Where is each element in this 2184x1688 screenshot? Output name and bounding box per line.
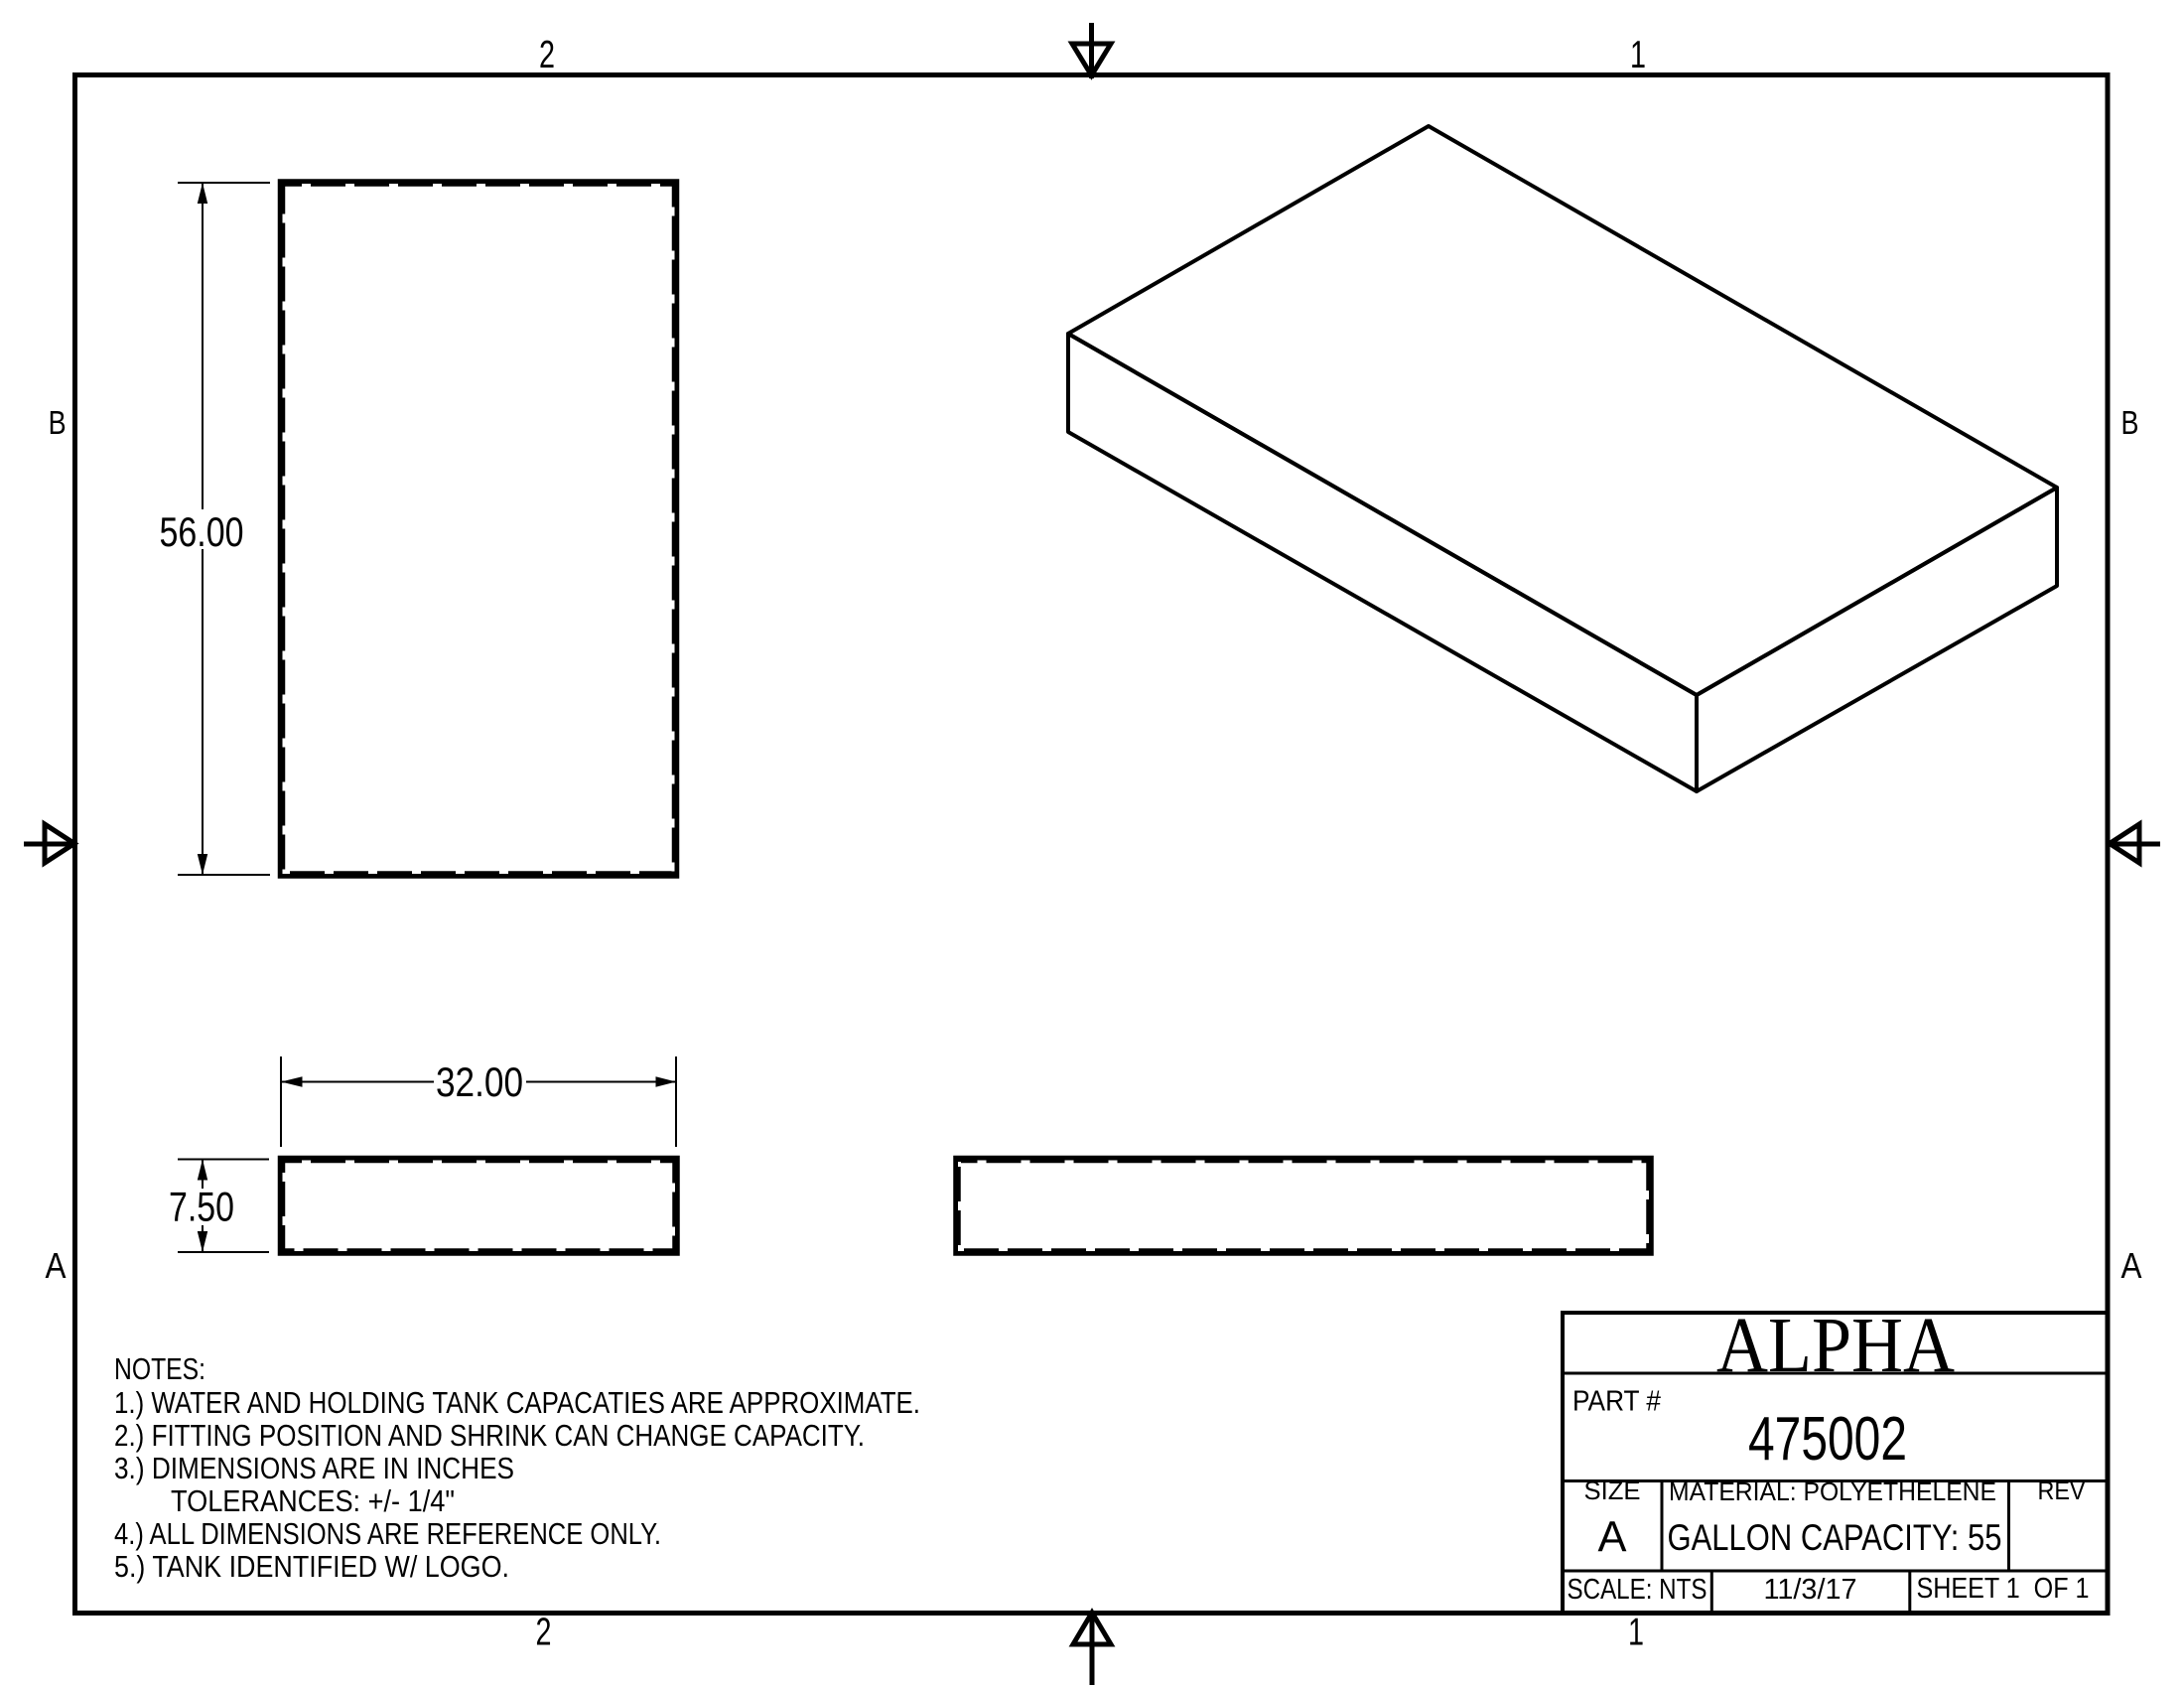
- svg-text:4.) ALL DIMENSIONS ARE REFEREN: 4.) ALL DIMENSIONS ARE REFERENCE ONLY.: [114, 1516, 661, 1551]
- svg-text:A: A: [2121, 1245, 2142, 1286]
- svg-text:3.) DIMENSIONS ARE IN INCHES: 3.) DIMENSIONS ARE IN INCHES: [114, 1451, 514, 1485]
- svg-text:MATERIAL: POLYETHELENE: MATERIAL: POLYETHELENE: [1669, 1477, 1996, 1506]
- svg-text:1.) WATER AND HOLDING TANK CAP: 1.) WATER AND HOLDING TANK CAPACATIES AR…: [114, 1385, 920, 1420]
- svg-text:2: 2: [536, 1612, 552, 1654]
- svg-text:475002: 475002: [1748, 1405, 1907, 1474]
- svg-text:NOTES:: NOTES:: [114, 1351, 205, 1386]
- svg-text:32.00: 32.00: [436, 1058, 523, 1105]
- svg-text:SIZE: SIZE: [1584, 1476, 1641, 1505]
- svg-text:2: 2: [539, 34, 555, 76]
- svg-text:56.00: 56.00: [160, 508, 244, 555]
- svg-text:2.) FITTING POSITION AND SHRIN: 2.) FITTING POSITION AND SHRINK CAN CHAN…: [114, 1418, 865, 1453]
- svg-text:1: 1: [1628, 1612, 1644, 1654]
- svg-text:A: A: [46, 1245, 67, 1286]
- svg-text:GALLON CAPACITY: 55: GALLON CAPACITY: 55: [1668, 1517, 2002, 1558]
- svg-text:ALPHA: ALPHA: [1716, 1303, 1955, 1389]
- svg-text:7.50: 7.50: [169, 1184, 234, 1230]
- svg-text:5.) TANK IDENTIFIED W/ LOGO.: 5.) TANK IDENTIFIED W/ LOGO.: [114, 1549, 509, 1584]
- svg-text:B: B: [2121, 404, 2139, 441]
- svg-text:REV: REV: [2038, 1476, 2087, 1505]
- svg-text:TOLERANCES: +/- 1/4": TOLERANCES: +/- 1/4": [171, 1483, 455, 1518]
- svg-text:11/3/17: 11/3/17: [1764, 1574, 1857, 1606]
- svg-text:PART #: PART #: [1572, 1386, 1661, 1418]
- svg-text:SCALE: NTS: SCALE: NTS: [1568, 1574, 1707, 1606]
- svg-text:1: 1: [1630, 34, 1646, 76]
- svg-text:A: A: [1598, 1513, 1628, 1562]
- svg-text:SHEET 1 OF 1: SHEET 1 OF 1: [1917, 1573, 2090, 1605]
- svg-text:B: B: [49, 404, 67, 441]
